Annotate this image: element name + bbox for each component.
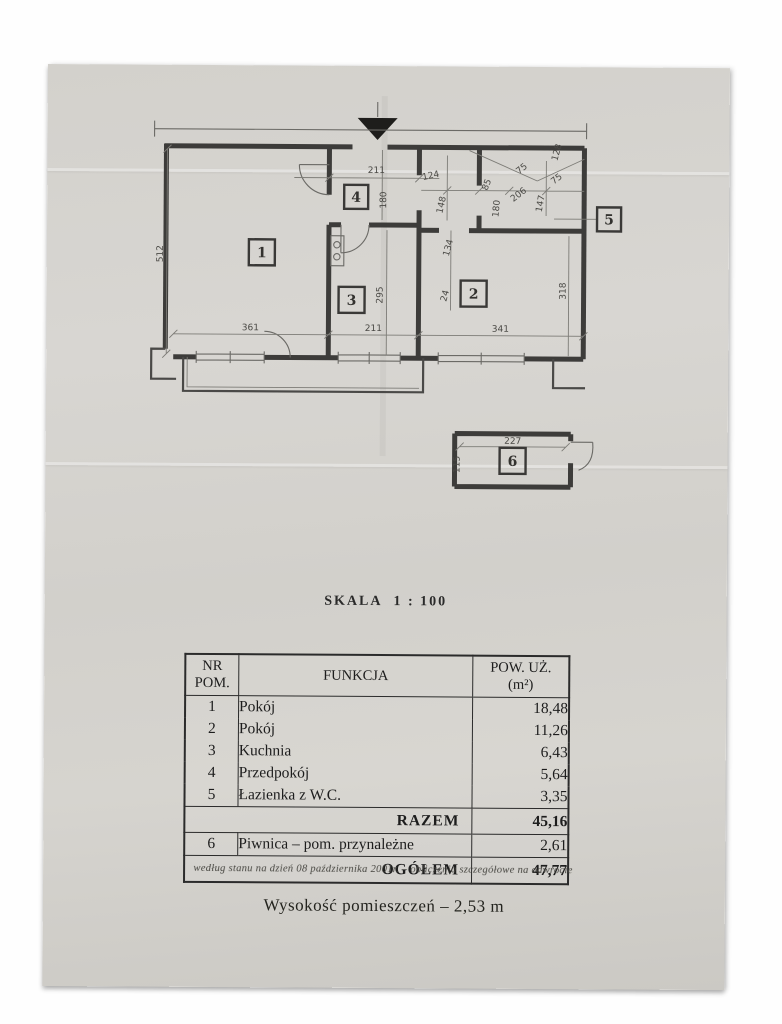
- dim-label: 361: [242, 323, 259, 333]
- cell-nr: 3: [185, 740, 239, 762]
- north-arrow-icon: [358, 102, 398, 140]
- outer-walls: [151, 144, 584, 382]
- razem-value: 45,16: [472, 808, 569, 835]
- scanned-paper: 361 211 341 512 211 180 295 318 124 148 …: [42, 64, 730, 990]
- table-header-row: NR POM. FUNKCJA POW. UŻ. (m²): [185, 654, 569, 698]
- dim-label: 341: [492, 325, 509, 335]
- dim-label: 124: [421, 170, 440, 183]
- table-row-cellar: 6 Piwnica – pom. przynależne 2,61: [184, 832, 568, 857]
- dim-label: 134: [442, 238, 456, 257]
- cell-nr: 5: [184, 784, 238, 807]
- room-2-label: 2: [469, 287, 479, 303]
- room-1-label: 1: [257, 245, 267, 261]
- header-pow-line1: POW. UŻ.: [490, 660, 551, 676]
- dim-label: 85: [481, 178, 495, 192]
- cell-funkcja: Piwnica – pom. przynależne: [238, 833, 472, 857]
- table-row: 2 Pokój 11,26: [185, 718, 569, 742]
- cell-funkcja: Łazienka z W.C.: [238, 784, 472, 808]
- balcony-outlines: [183, 357, 585, 393]
- razem-row: RAZEM 45,16: [184, 806, 568, 834]
- cellar-plan: 227 115 6: [452, 433, 593, 487]
- sink-fixture: [331, 236, 344, 266]
- cell-pow: 2,61: [472, 834, 569, 858]
- table-row: 3 Kuchnia 6,43: [185, 740, 569, 764]
- header-nr-pom: NR POM.: [185, 654, 239, 696]
- cell-nr: 2: [185, 718, 239, 740]
- dim-label: 75: [515, 162, 530, 177]
- dim-label: 180: [491, 199, 503, 217]
- room-height-note: Wysokość pomieszczeń – 2,53 m: [43, 894, 725, 918]
- header-pow-line2: (m²): [508, 677, 533, 693]
- cell-funkcja: Pokój: [239, 696, 473, 720]
- dim-label: 211: [368, 166, 385, 176]
- cell-nr: 1: [185, 695, 239, 718]
- dim-label: 318: [559, 282, 569, 300]
- dim-label: 206: [509, 186, 529, 205]
- table-row: 1 Pokój 18,48: [185, 695, 569, 720]
- dim-label: 115: [453, 456, 463, 473]
- room-areas-table: NR POM. FUNKCJA POW. UŻ. (m²) 1 Pokój 18…: [183, 653, 570, 885]
- table-row: 4 Przedpokój 5,64: [185, 762, 569, 786]
- dim-label: 180: [379, 191, 389, 209]
- cell-pow: 6,43: [472, 742, 569, 765]
- header-pow-uz: POW. UŻ. (m²): [473, 656, 570, 698]
- cell-funkcja: Pokój: [238, 718, 472, 741]
- floor-plan: 361 211 341 512 211 180 295 318 124 148 …: [137, 99, 639, 502]
- cell-pow: 3,35: [472, 786, 569, 809]
- header-nr-line2: POM.: [195, 675, 230, 691]
- cell-funkcja: Przedpokój: [238, 762, 472, 785]
- cell-funkcja: Kuchnia: [238, 740, 472, 763]
- room-4-label: 4: [351, 190, 361, 206]
- dim-label: 227: [504, 437, 521, 447]
- table-row: 5 Łazienka z W.C. 3,35: [184, 784, 568, 809]
- cell-nr: 6: [184, 832, 238, 855]
- razem-label: RAZEM: [184, 806, 472, 834]
- header-nr-line1: NR: [202, 658, 222, 674]
- cell-nr: 4: [185, 762, 239, 784]
- scanned-document-page: 361 211 341 512 211 180 295 318 124 148 …: [0, 0, 782, 1024]
- windows: [196, 351, 524, 365]
- room-6-label: 6: [508, 454, 518, 470]
- dim-label: 211: [365, 324, 382, 334]
- dim-label: 512: [156, 245, 166, 262]
- room-5-label: 5: [604, 212, 614, 228]
- cell-pow: 11,26: [472, 720, 569, 743]
- cell-pow: 5,64: [472, 764, 569, 787]
- scale-label: SKALA 1 : 100: [45, 592, 727, 612]
- header-funkcja: FUNKCJA: [239, 654, 473, 697]
- dimension-labels: 361 211 341 512 211 180 295 318 124 148 …: [155, 140, 569, 335]
- cell-pow: 18,48: [473, 697, 570, 720]
- dim-label: 295: [376, 286, 386, 303]
- room-3-label: 3: [347, 293, 357, 309]
